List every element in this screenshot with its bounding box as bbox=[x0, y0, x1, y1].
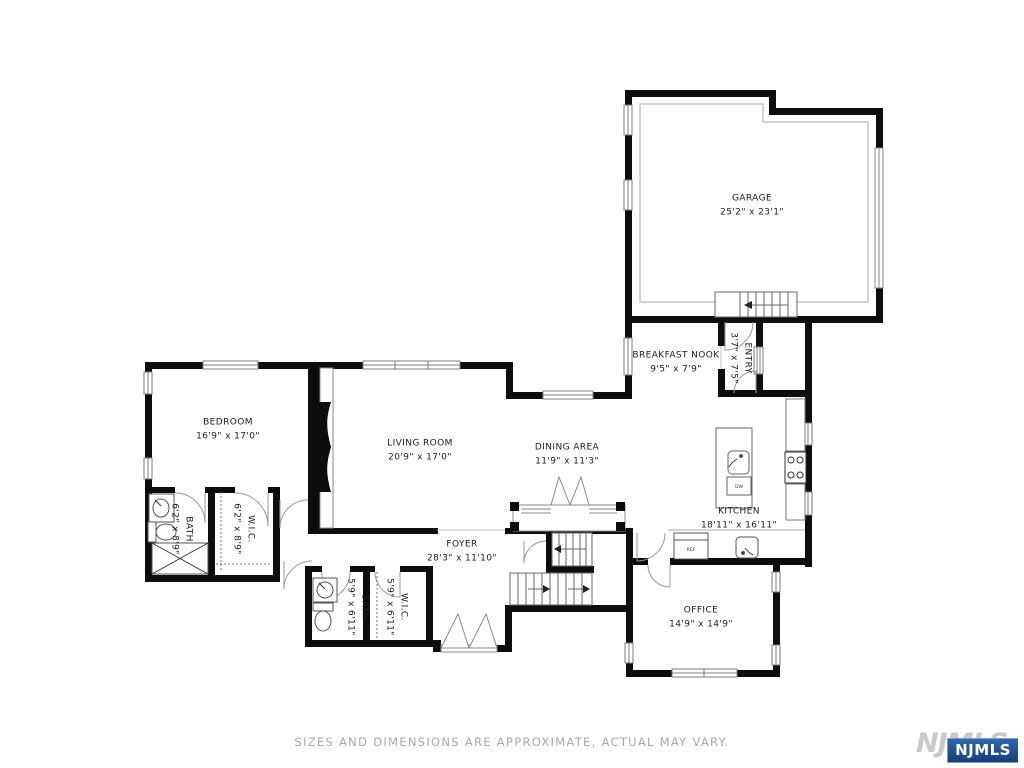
sink bbox=[728, 451, 749, 474]
sink bbox=[317, 582, 333, 598]
main-stairs-upper bbox=[552, 533, 592, 566]
door-swing bbox=[570, 477, 589, 505]
refrigerator-label: REF bbox=[687, 547, 696, 553]
room-label-foyer: FOYER28'3" x 11'10" bbox=[427, 539, 497, 566]
door-swing bbox=[469, 614, 497, 648]
room-label-garage: GARAGE25'2" x 23'1" bbox=[720, 193, 784, 220]
hall-bath-fixtures bbox=[313, 578, 337, 631]
disclaimer-text: SIZES AND DIMENSIONS ARE APPROXIMATE, AC… bbox=[0, 735, 1024, 749]
refrigerator bbox=[674, 533, 708, 559]
room-label-office: OFFICE14'9" x 14'9" bbox=[669, 605, 733, 632]
kitchen-island bbox=[716, 428, 752, 508]
dining-doors-bay bbox=[510, 477, 625, 531]
toilet-tank bbox=[313, 603, 333, 611]
room-label-bedroom: BEDROOM16'9" x 17'0" bbox=[196, 417, 260, 444]
room-label-dining-area: DINING AREA11'9" x 11'3" bbox=[535, 442, 599, 469]
room-label-entry: ENTRY3'7" x 7'5" bbox=[727, 332, 754, 384]
door-swing bbox=[441, 614, 469, 648]
toilet-tank bbox=[148, 522, 156, 542]
kitchen-sink-2 bbox=[736, 537, 758, 558]
room-label-hall-wic: W.I.C.5'9" x 6'11" bbox=[383, 578, 410, 636]
windows bbox=[144, 105, 812, 677]
floorplan-page: DW REF bbox=[0, 0, 1024, 768]
door-swing bbox=[551, 477, 570, 505]
garage-stairs bbox=[715, 292, 797, 317]
njmls-badge: NJMLS bbox=[947, 738, 1018, 763]
stove bbox=[785, 452, 806, 483]
room-label-kitchen: KITCHEN18'11" x 16'11" bbox=[701, 506, 777, 533]
room-label-master-bath: BATH6'2" x 8'9" bbox=[168, 503, 195, 555]
front-entry-doors bbox=[441, 614, 497, 652]
main-stairs-lower bbox=[510, 573, 592, 605]
garage-door bbox=[875, 148, 883, 288]
room-label-breakfast-nook: BREAKFAST NOOK9'5" x 7'9" bbox=[632, 350, 719, 377]
entry-sidelight bbox=[754, 347, 763, 374]
room-label-living-room: LIVING ROOM20'9" x 17'0" bbox=[387, 438, 453, 465]
floorplan-drawing: DW REF bbox=[0, 0, 1024, 768]
room-label-master-wic: W.I.C.6'2" x 8'9" bbox=[230, 503, 257, 555]
njmls-logo: NJMLS NJMLS bbox=[914, 722, 1018, 764]
toilet bbox=[315, 611, 331, 631]
dishwasher-label: DW bbox=[735, 484, 743, 490]
room-label-hall-bath: BATH5'9" x 6'11" bbox=[344, 578, 371, 636]
